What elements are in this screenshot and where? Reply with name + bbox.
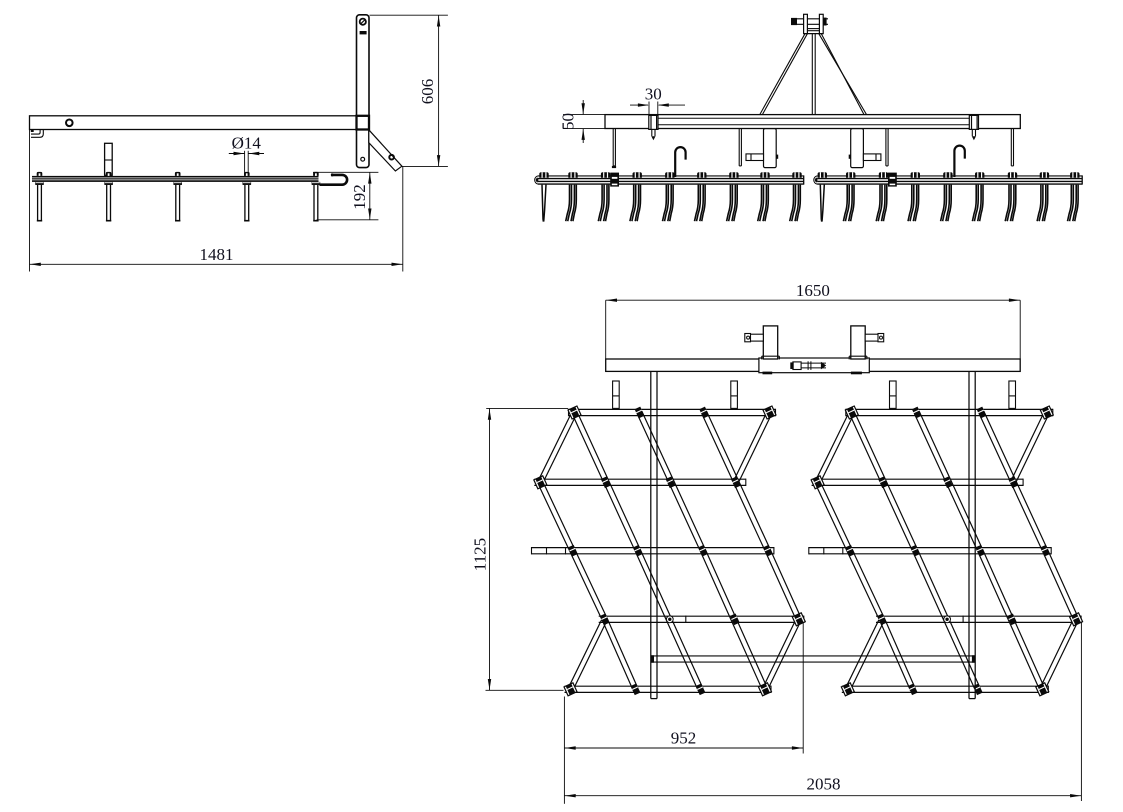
svg-text:1125: 1125 xyxy=(470,538,489,571)
svg-text:30: 30 xyxy=(645,85,662,104)
svg-text:192: 192 xyxy=(350,184,369,210)
svg-text:1650: 1650 xyxy=(796,281,830,300)
svg-text:1481: 1481 xyxy=(200,245,234,264)
svg-text:50: 50 xyxy=(559,113,578,130)
svg-text:2058: 2058 xyxy=(807,775,841,794)
svg-text:Ø14: Ø14 xyxy=(232,133,262,152)
svg-text:952: 952 xyxy=(671,729,697,748)
svg-text:606: 606 xyxy=(418,79,437,105)
